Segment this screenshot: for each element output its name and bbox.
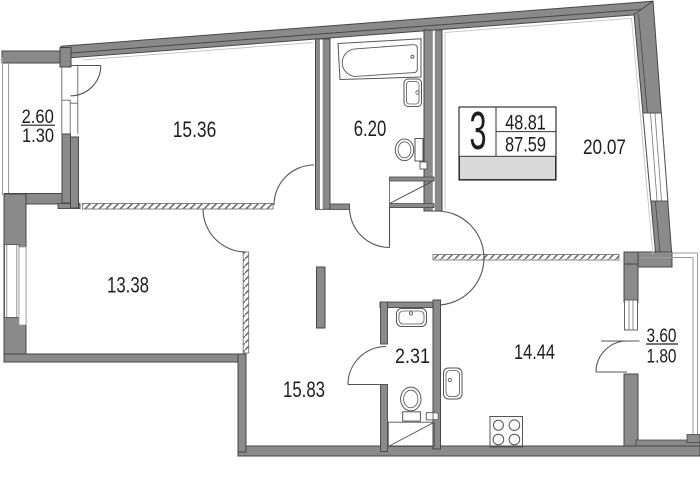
svg-text:3: 3 bbox=[470, 101, 487, 161]
svg-text:48.81: 48.81 bbox=[505, 112, 546, 135]
svg-text:6.20: 6.20 bbox=[354, 116, 387, 141]
svg-text:2.31: 2.31 bbox=[395, 345, 430, 368]
svg-text:87.59: 87.59 bbox=[505, 134, 546, 157]
svg-text:1.80: 1.80 bbox=[647, 347, 677, 368]
svg-text:15.36: 15.36 bbox=[173, 117, 217, 142]
svg-text:1.30: 1.30 bbox=[22, 125, 54, 147]
svg-text:14.44: 14.44 bbox=[514, 341, 555, 364]
svg-text:15.83: 15.83 bbox=[283, 377, 325, 402]
svg-text:13.38: 13.38 bbox=[107, 273, 149, 298]
svg-text:20.07: 20.07 bbox=[583, 136, 626, 159]
